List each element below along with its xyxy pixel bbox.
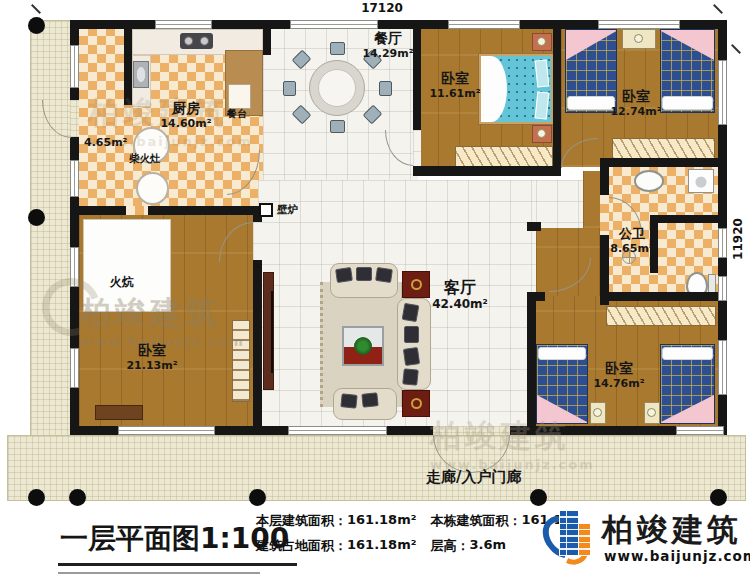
window	[70, 45, 79, 88]
dimension-top: 17120	[352, 1, 412, 15]
firewood-stove-pot-2	[136, 172, 169, 205]
room-name: 卧室	[441, 70, 469, 87]
logo-building-orange	[578, 523, 591, 556]
column	[28, 209, 45, 226]
living-corridor-floor	[536, 180, 583, 228]
tv-cabinet	[263, 272, 274, 390]
bed-blanket	[660, 395, 714, 423]
wall-bedroom2-bottom	[600, 158, 718, 167]
sofa-cushion	[361, 392, 378, 408]
column	[28, 17, 45, 34]
room-area: 21.13m²	[126, 359, 177, 372]
low-cabinet	[95, 405, 143, 420]
room-area: 42.40m²	[432, 297, 488, 311]
room-name: 公卫	[619, 226, 645, 242]
brand-name: 柏竣建筑	[602, 509, 742, 551]
column	[69, 489, 86, 506]
sofa-cushion	[403, 347, 420, 366]
wardrobe	[612, 138, 715, 160]
title-underline	[58, 572, 260, 574]
dining-chair	[283, 81, 296, 96]
dining-chair	[379, 81, 392, 96]
bed-fold	[538, 347, 586, 360]
floor-plan-canvas: 柏竣建筑 www.baijunjz.com 柏竣建筑 www.baijunjz.…	[0, 0, 750, 580]
brand-logo: 柏竣建筑 www.baijunjz.com	[545, 503, 745, 573]
kang-label: 火炕	[110, 274, 134, 291]
logo-building-blue	[559, 510, 579, 556]
stat-label: 建筑占地面积：	[256, 537, 347, 555]
room-area: 8.65m²	[610, 242, 653, 255]
opening-kitchen-bedroom3	[126, 206, 148, 215]
room-area: 12.74m²	[610, 105, 661, 118]
hallway-floor-a	[583, 171, 600, 228]
room-name: 卧室	[622, 88, 650, 105]
window	[70, 348, 79, 388]
fireplace-icon	[259, 203, 273, 217]
sofa-cushion	[404, 326, 419, 343]
stat-value: 3.6m	[469, 537, 506, 555]
wall-hallway-pier	[527, 222, 541, 231]
bed-blanket	[566, 30, 617, 60]
stats-row: 本层建筑面积： 161.18m² 本栋建筑面积： 161.1	[256, 512, 563, 530]
room-label-dining: 餐厅 14.29m²	[358, 30, 418, 60]
room-area: 11.61m²	[429, 87, 480, 100]
window	[448, 20, 520, 29]
bathroom-sink-icon	[634, 170, 664, 192]
sofa-cushion	[356, 267, 372, 281]
wall-kitchen-corridor	[124, 27, 132, 105]
wall-bedroom1-bedroom2	[553, 27, 561, 167]
bed-fold	[662, 96, 713, 110]
room-label-living: 客厅 42.40m²	[430, 278, 490, 312]
room-label-bathroom: 公卫 8.65m²	[604, 226, 660, 255]
room-area: 14.76m²	[593, 377, 644, 390]
fireplace-label: 壁炉	[277, 203, 298, 217]
lamp-icon	[593, 408, 602, 417]
firewood-stove-label: 柴火灶	[129, 152, 161, 166]
plant-icon	[354, 337, 372, 355]
opening-bedroom3-door	[253, 222, 262, 260]
brand-website: www.baijunjz.com	[604, 548, 750, 564]
stat-floor-height: 层高： 3.6m	[430, 537, 506, 555]
counter-inset	[228, 84, 251, 109]
stat-footprint-area: 建筑占地面积： 161.18m²	[256, 537, 416, 555]
room-label-bedroom2: 卧室 12.74m²	[604, 88, 668, 118]
room-name: 厨房	[172, 100, 200, 117]
dimension-tick	[731, 44, 741, 54]
corridor-area-label: 4.65m²	[84, 136, 127, 149]
dining-counter-label: 餐台	[227, 107, 247, 121]
dining-table-top	[318, 69, 356, 107]
lamp-icon	[634, 34, 643, 43]
bed-blanket	[537, 395, 588, 423]
lamp-icon	[537, 129, 546, 138]
room-label-bedroom4: 卧室 14.76m²	[590, 360, 648, 390]
lamp-icon	[647, 408, 656, 417]
stat-label: 本栋建筑面积：	[430, 512, 521, 530]
dining-chair	[330, 42, 345, 55]
sofa-cushion	[375, 267, 393, 283]
opening-porch-door	[70, 100, 79, 137]
wall-bathroom-inner-h	[650, 215, 718, 223]
dimension-tick	[31, 4, 41, 14]
room-name: 卧室	[605, 360, 633, 377]
sofa-cushion	[402, 303, 420, 322]
tv-icon	[271, 291, 273, 373]
bed-fold	[662, 347, 713, 360]
room-area: 14.60m²	[160, 117, 211, 130]
stove-icon	[180, 33, 213, 49]
sofa-cushion	[340, 393, 357, 409]
window	[718, 276, 727, 301]
washing-machine-icon	[688, 169, 714, 193]
plan-title-text: 一层平面图	[60, 522, 200, 555]
wall-bedroom3-top	[79, 206, 263, 215]
medallion-icon	[411, 279, 422, 290]
wall-kitchen-dining	[263, 27, 271, 55]
window	[118, 426, 215, 435]
dimension-right: 11920	[731, 217, 745, 261]
wardrobe	[606, 306, 716, 326]
column	[28, 489, 45, 506]
window	[718, 340, 727, 395]
porch-bottom-entry	[7, 435, 746, 501]
wall-bathroom-bottom	[600, 292, 718, 301]
dining-chair	[330, 120, 345, 133]
stat-label: 层高：	[430, 537, 469, 555]
room-label-kitchen: 厨房 14.60m²	[156, 100, 216, 130]
sofa-cushion	[402, 368, 419, 385]
stats-row: 建筑占地面积： 161.18m² 层高： 3.6m	[256, 537, 563, 555]
room-label-bedroom3: 卧室 21.13m²	[120, 342, 184, 372]
window	[676, 426, 724, 435]
area-stats: 本层建筑面积： 161.18m² 本栋建筑面积： 161.1 建筑占地面积： 1…	[256, 512, 563, 555]
wall-living-bedroom4	[527, 292, 536, 435]
shelf-ladder	[232, 320, 250, 402]
window	[290, 20, 378, 29]
stat-value: 161.18m²	[347, 537, 416, 555]
room-name: 卧室	[138, 342, 166, 359]
entry-porch-label: 走廊/入户门廊	[426, 468, 521, 487]
medallion-icon	[411, 398, 422, 409]
window	[598, 20, 680, 29]
window	[718, 228, 727, 258]
window	[155, 20, 212, 29]
sliding-glass-door	[288, 426, 387, 435]
window	[718, 60, 727, 125]
porch-left	[30, 20, 72, 501]
dimension-tick	[713, 4, 723, 14]
wall-bedroom1-bottom	[413, 166, 561, 176]
sofa-cushion	[335, 267, 353, 283]
lamp-icon	[537, 37, 546, 46]
room-area: 14.29m²	[362, 47, 413, 60]
room-name: 餐厅	[374, 30, 402, 47]
room-label-bedroom1: 卧室 11.61m²	[425, 70, 485, 100]
bed-blanket	[660, 30, 714, 60]
opening-entry-door	[433, 426, 510, 435]
kitchen-sink-icon	[133, 61, 149, 88]
column	[249, 489, 266, 506]
stat-floor-area: 本层建筑面积： 161.18m²	[256, 512, 416, 530]
window	[70, 160, 79, 197]
room-name: 客厅	[444, 278, 476, 297]
stat-value: 161.18m²	[347, 512, 416, 530]
stat-label: 本层建筑面积：	[256, 512, 347, 530]
opening-bedroom1-door	[413, 130, 421, 166]
